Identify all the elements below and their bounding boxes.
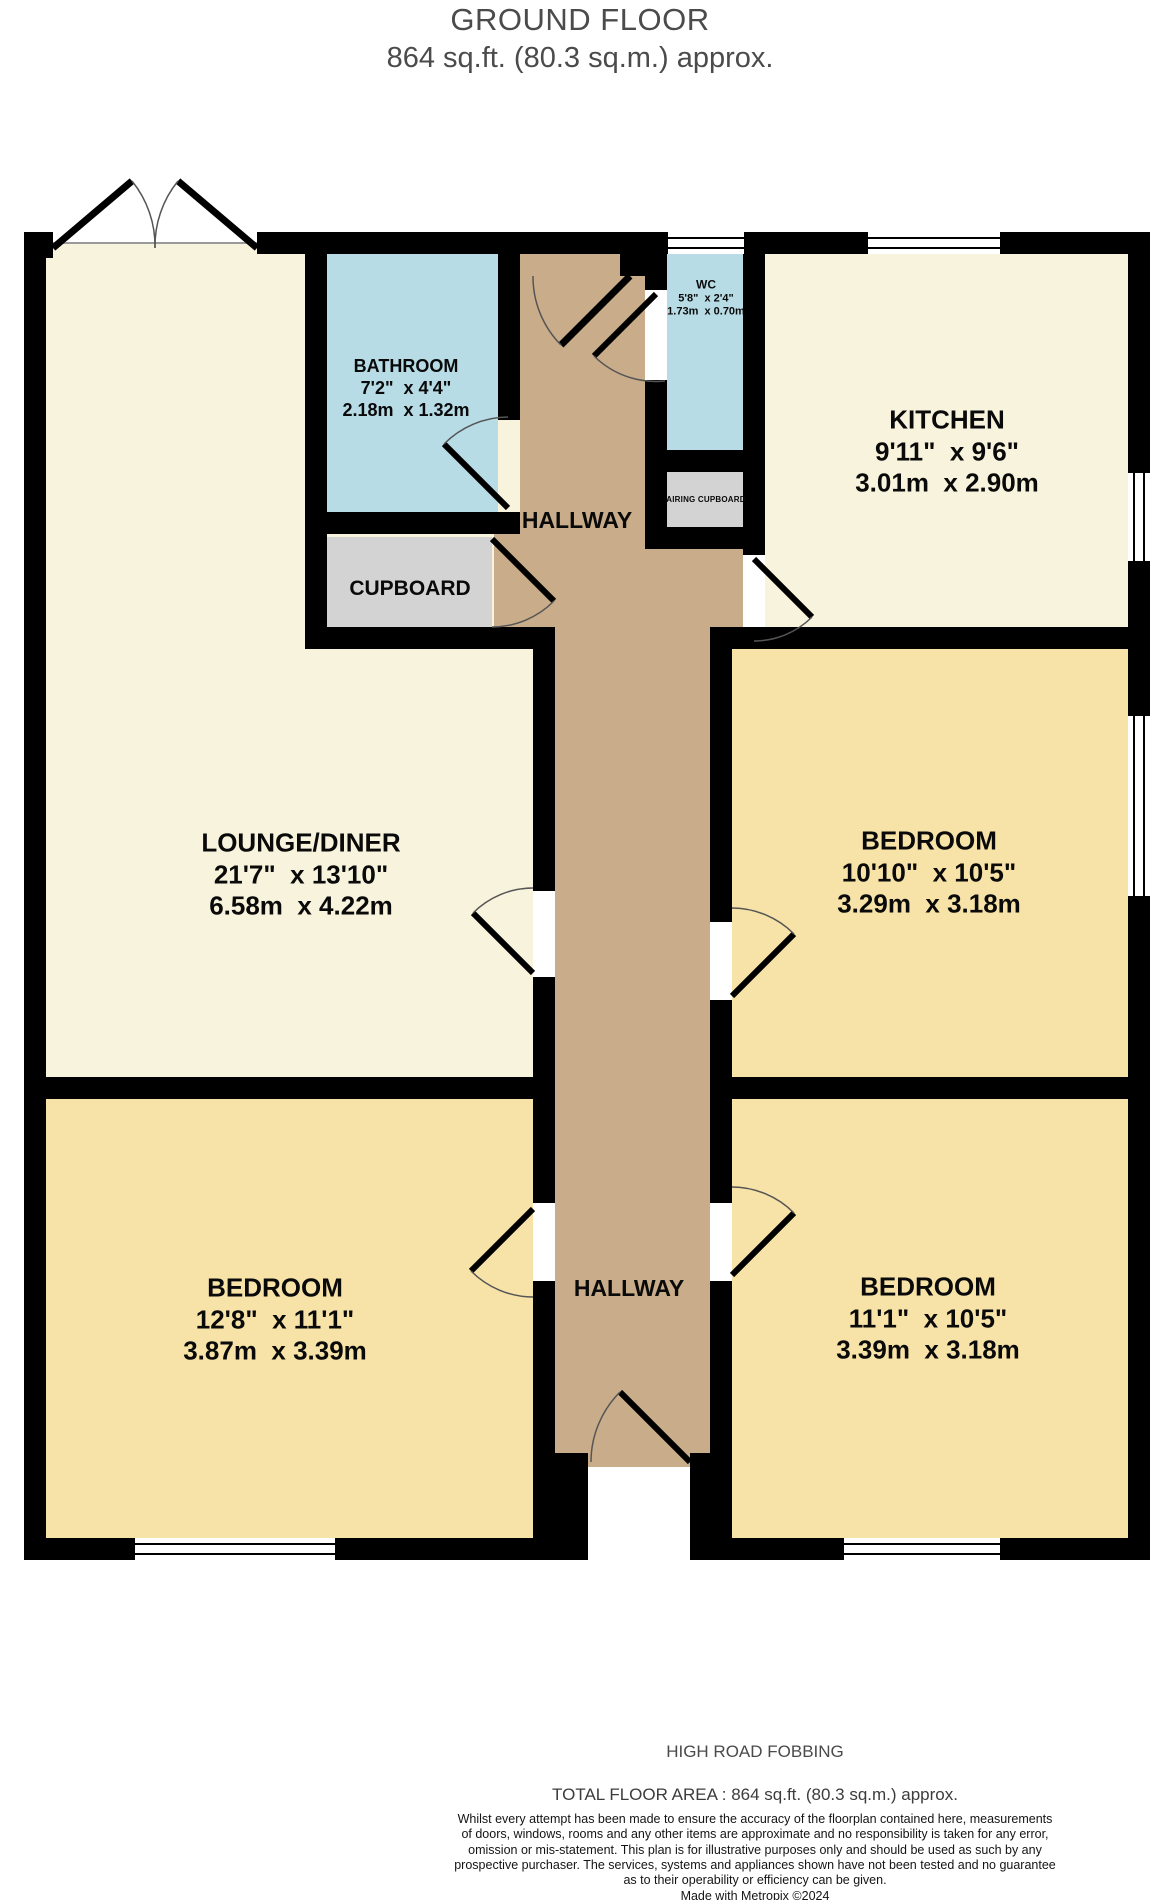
wc-dims-imperial: 5'8" x 2'4" <box>667 292 745 305</box>
bedroom-left-label: BEDROOM 12'8" x 11'1" 3.87m x 3.39m <box>183 1272 367 1367</box>
floorplan-canvas <box>0 0 1160 1900</box>
bedroom-right-name: BEDROOM <box>837 825 1021 857</box>
disclaimer-line: omission or mis-statement. This plan is … <box>350 1843 1160 1858</box>
hallway-bottom-name: HALLWAY <box>574 1274 684 1302</box>
hallway-top-floor <box>520 254 645 534</box>
lounge-diner-dims-metric: 6.58m x 4.22m <box>201 891 400 923</box>
bathroom-dims-metric: 2.18m x 1.32m <box>342 400 469 422</box>
bathroom-name: BATHROOM <box>342 356 469 378</box>
bedroom-right-label: BEDROOM 10'10" x 10'5" 3.29m x 3.18m <box>837 825 1021 920</box>
lounge-diner-name: LOUNGE/DINER <box>201 827 400 859</box>
disclaimer-line: as to their operability or efficiency ca… <box>350 1873 1160 1888</box>
total-floor-area: TOTAL FLOOR AREA : 864 sq.ft. (80.3 sq.m… <box>350 1785 1160 1805</box>
kitchen-side-window <box>1128 472 1150 562</box>
hallway-top-label: HALLWAY <box>522 506 632 534</box>
kitchen-label: KITCHEN 9'11" x 9'6" 3.01m x 2.90m <box>855 404 1039 499</box>
wc-name: WC <box>667 277 745 292</box>
bedroom-bottom-right-dims-metric: 3.39m x 3.18m <box>836 1335 1020 1367</box>
cupboard-label: CUPBOARD <box>349 576 470 602</box>
bedroom-bottom-right-window <box>843 1538 1001 1560</box>
bedroom-bottom-right-name: BEDROOM <box>836 1271 1020 1303</box>
disclaimer-line: of doors, windows, rooms and any other i… <box>350 1827 1160 1842</box>
hallway-bottom-floor <box>555 649 710 1467</box>
bedroom-right-dims-metric: 3.29m x 3.18m <box>837 889 1021 921</box>
bathroom-dims-imperial: 7'2" x 4'4" <box>342 378 469 400</box>
metropix-credit: Made with Metropix ©2024 <box>350 1889 1160 1900</box>
airing-cupboard-name: AIRING CUPBOARD <box>666 495 745 505</box>
lounge-diner-dims-imperial: 21'7" x 13'10" <box>201 859 400 891</box>
kitchen-top-window <box>867 232 1001 254</box>
bedroom-bottom-right-label: BEDROOM 11'1" x 10'5" 3.39m x 3.18m <box>836 1271 1020 1366</box>
lounge-diner-label: LOUNGE/DINER 21'7" x 13'10" 6.58m x 4.22… <box>201 827 400 922</box>
hallway-top-name: HALLWAY <box>522 506 632 534</box>
bedroom-left-name: BEDROOM <box>183 1272 367 1304</box>
kitchen-name: KITCHEN <box>855 404 1039 436</box>
kitchen-dims-metric: 3.01m x 2.90m <box>855 468 1039 500</box>
bedroom-left-window <box>134 1538 336 1560</box>
bedroom-left-dims-imperial: 12'8" x 11'1" <box>183 1304 367 1336</box>
floorplan-page: GROUND FLOOR 864 sq.ft. (80.3 sq.m.) app… <box>0 0 1160 1900</box>
disclaimer: Whilst every attempt has been made to en… <box>350 1812 1160 1888</box>
wc-label: WC 5'8" x 2'4" 1.73m x 0.70m <box>667 277 745 318</box>
property-address: HIGH ROAD FOBBING <box>350 1742 1160 1762</box>
entrance-double-door <box>53 181 257 248</box>
bathroom-label: BATHROOM 7'2" x 4'4" 2.18m x 1.32m <box>342 356 469 422</box>
disclaimer-line: prospective purchaser. The services, sys… <box>350 1858 1160 1873</box>
wc-window <box>667 232 745 254</box>
hallway-bottom-label: HALLWAY <box>574 1274 684 1302</box>
footer: HIGH ROAD FOBBING TOTAL FLOOR AREA : 864… <box>350 1742 1160 1900</box>
disclaimer-line: Whilst every attempt has been made to en… <box>350 1812 1160 1827</box>
airing-cupboard-label: AIRING CUPBOARD <box>666 495 745 505</box>
bedroom-bottom-right-dims-imperial: 11'1" x 10'5" <box>836 1303 1020 1335</box>
kitchen-dims-imperial: 9'11" x 9'6" <box>855 436 1039 468</box>
bedroom-right-window <box>1128 715 1150 897</box>
bedroom-right-dims-imperial: 10'10" x 10'5" <box>837 857 1021 889</box>
bedroom-left-dims-metric: 3.87m x 3.39m <box>183 1336 367 1368</box>
cupboard-name: CUPBOARD <box>349 576 470 602</box>
wc-dims-metric: 1.73m x 0.70m <box>667 305 745 318</box>
